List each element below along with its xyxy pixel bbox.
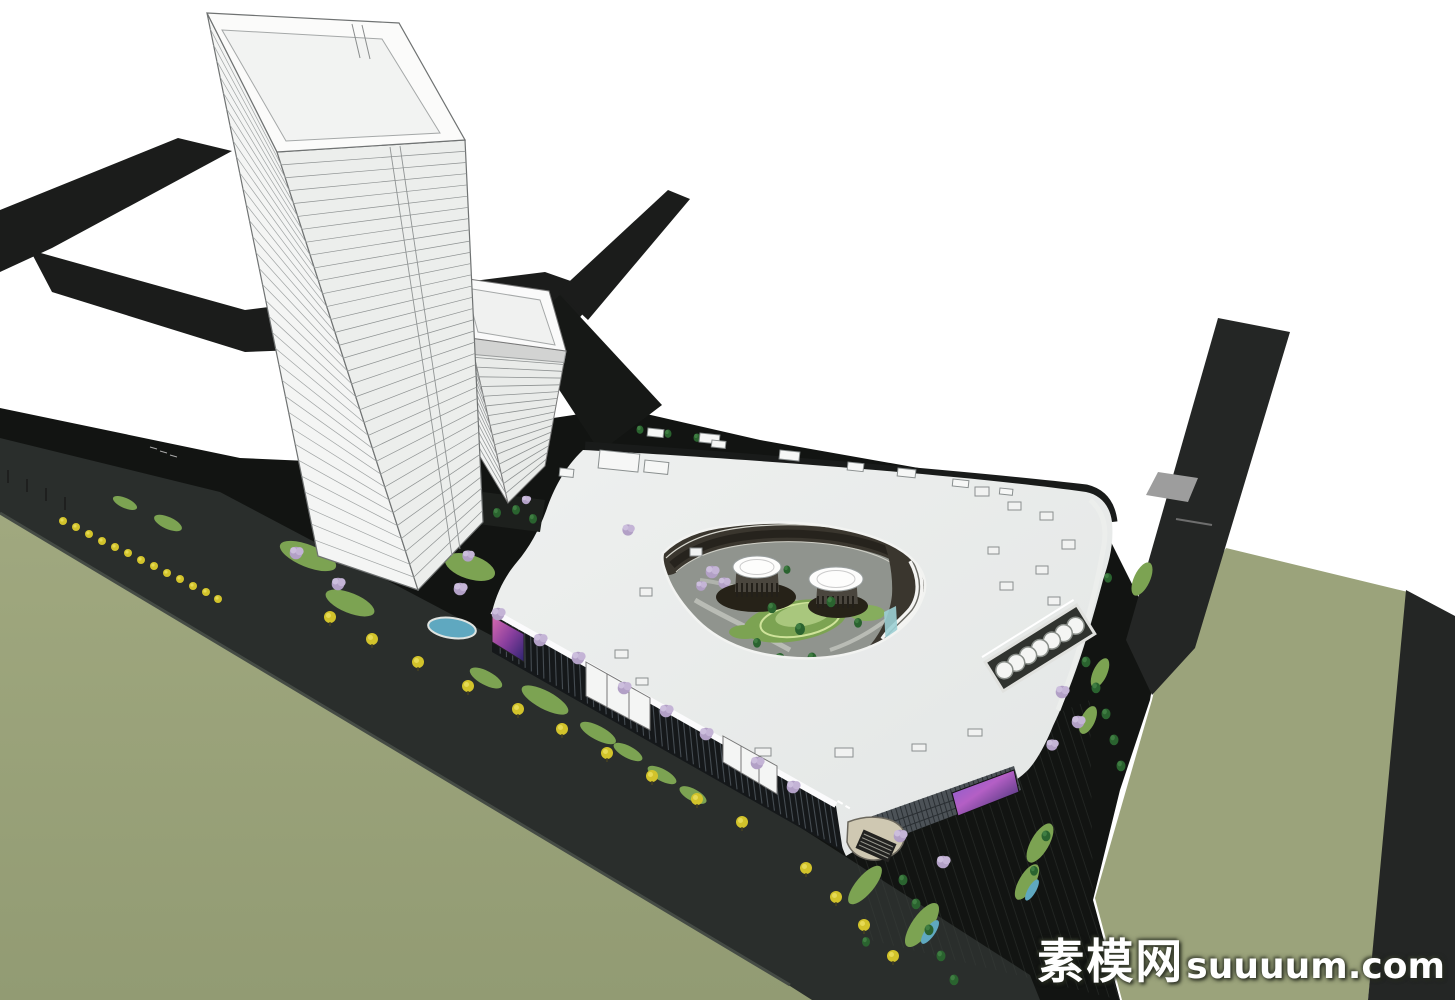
- architectural-render: 素模网suuuum.com: [0, 0, 1455, 1000]
- site-plan-svg: [0, 0, 1455, 1000]
- watermark-site-name: 素模网: [1037, 923, 1184, 992]
- watermark: 素模网suuuum.com: [1037, 923, 1445, 992]
- watermark-domain: suuuum.com: [1186, 946, 1445, 987]
